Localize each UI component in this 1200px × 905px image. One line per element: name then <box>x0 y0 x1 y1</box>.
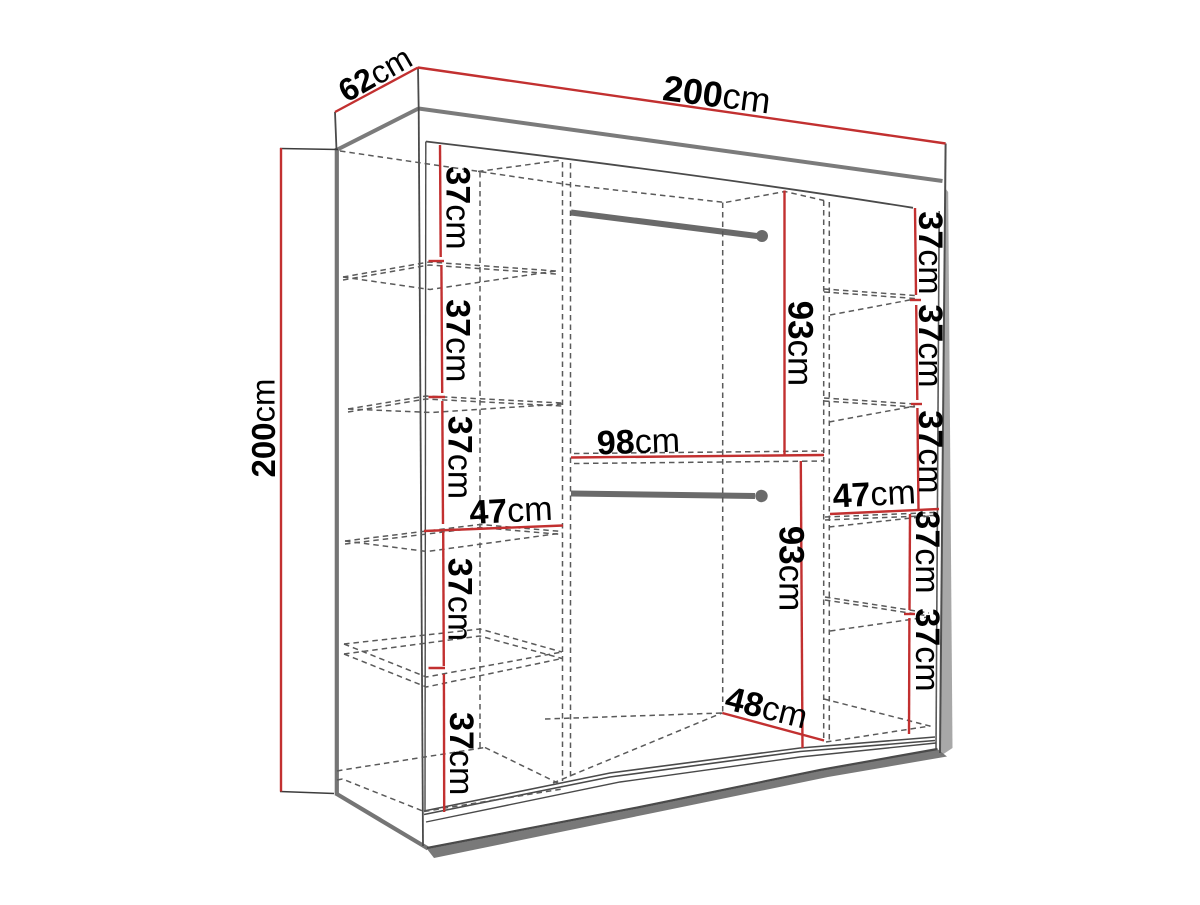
svg-text:37cm: 37cm <box>911 211 949 294</box>
svg-text:37cm: 37cm <box>911 410 949 493</box>
svg-text:37cm: 37cm <box>908 510 946 593</box>
svg-text:37cm: 37cm <box>439 166 477 249</box>
svg-text:47cm: 47cm <box>832 473 917 515</box>
svg-text:37cm: 37cm <box>442 712 480 795</box>
svg-text:47cm: 47cm <box>468 490 553 532</box>
svg-text:37cm: 37cm <box>441 416 479 499</box>
svg-text:37cm: 37cm <box>439 299 477 382</box>
svg-text:37cm: 37cm <box>441 558 479 641</box>
svg-text:37cm: 37cm <box>908 608 946 691</box>
svg-text:98cm: 98cm <box>596 422 680 463</box>
svg-text:93cm: 93cm <box>780 301 819 387</box>
svg-text:93cm: 93cm <box>771 526 810 612</box>
svg-text:37cm: 37cm <box>911 304 949 387</box>
svg-text:200cm: 200cm <box>245 378 282 477</box>
